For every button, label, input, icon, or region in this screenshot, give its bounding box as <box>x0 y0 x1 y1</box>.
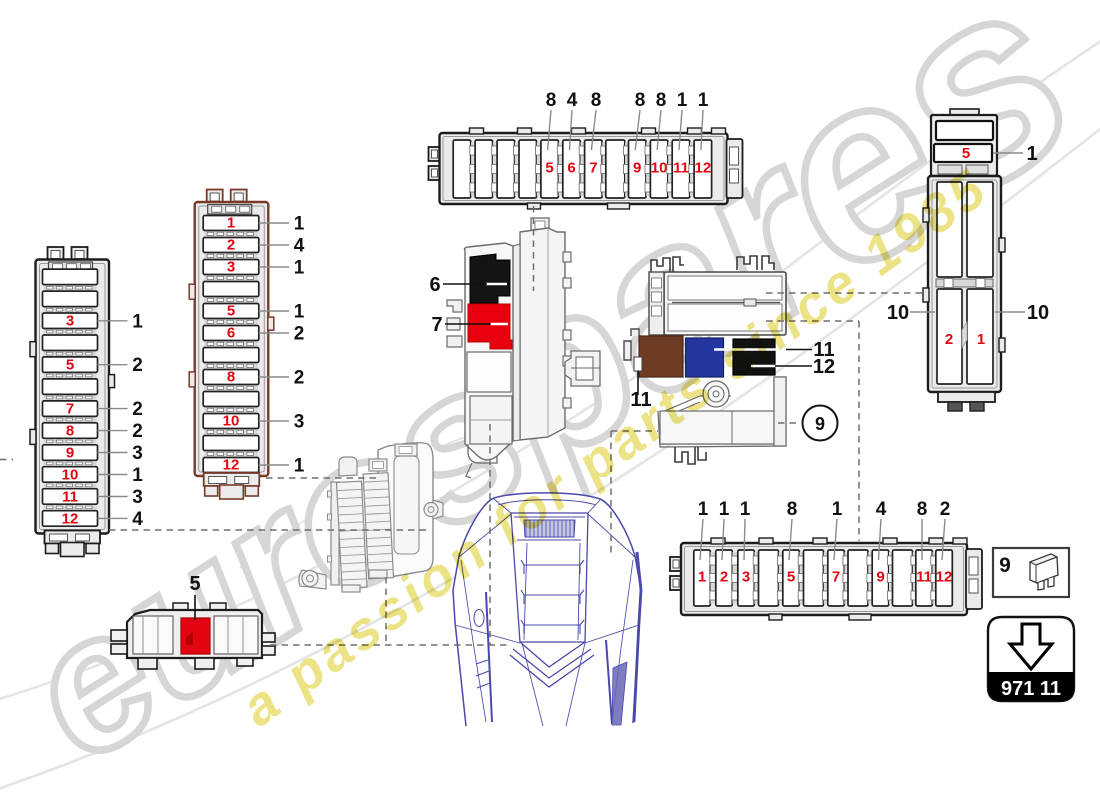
svg-text:2: 2 <box>294 368 305 389</box>
svg-text:9: 9 <box>66 445 74 462</box>
svg-text:5: 5 <box>66 357 74 374</box>
svg-text:12: 12 <box>223 457 240 474</box>
svg-text:12: 12 <box>695 160 712 177</box>
svg-text:5: 5 <box>787 569 795 586</box>
svg-text:3: 3 <box>132 443 143 464</box>
svg-text:8: 8 <box>635 90 646 111</box>
svg-text:5: 5 <box>189 573 200 595</box>
svg-text:8: 8 <box>917 499 928 520</box>
svg-text:1: 1 <box>698 569 706 586</box>
svg-text:971 11: 971 11 <box>1001 678 1061 700</box>
svg-text:1: 1 <box>977 331 985 348</box>
svg-text:1: 1 <box>294 214 305 235</box>
svg-text:1: 1 <box>698 90 709 111</box>
svg-text:3: 3 <box>227 259 235 276</box>
svg-text:1: 1 <box>294 302 305 323</box>
svg-text:2: 2 <box>945 331 953 348</box>
svg-text:6: 6 <box>567 160 575 177</box>
svg-text:10: 10 <box>223 413 240 430</box>
svg-text:6: 6 <box>429 274 440 296</box>
svg-text:2: 2 <box>227 237 235 254</box>
svg-text:9: 9 <box>876 569 884 586</box>
svg-text:10: 10 <box>651 160 668 177</box>
svg-text:10: 10 <box>1027 302 1049 324</box>
svg-text:3: 3 <box>66 313 74 330</box>
svg-text:11: 11 <box>916 569 932 586</box>
svg-text:10: 10 <box>62 466 79 483</box>
svg-text:2: 2 <box>132 355 143 376</box>
svg-text:12: 12 <box>936 569 953 586</box>
svg-text:7: 7 <box>589 160 597 177</box>
svg-text:2: 2 <box>132 421 143 442</box>
svg-text:3: 3 <box>742 569 750 586</box>
svg-text:8: 8 <box>591 90 602 111</box>
svg-text:1: 1 <box>677 90 688 111</box>
svg-text:4: 4 <box>294 236 305 257</box>
svg-text:1: 1 <box>698 499 709 520</box>
svg-text:3: 3 <box>294 412 305 433</box>
svg-text:8: 8 <box>546 90 557 111</box>
svg-text:12: 12 <box>62 510 79 527</box>
svg-text:1: 1 <box>1026 143 1037 165</box>
svg-text:9: 9 <box>999 554 1011 577</box>
svg-text:11: 11 <box>62 488 78 505</box>
svg-text:2: 2 <box>720 569 728 586</box>
svg-text:1: 1 <box>294 258 305 279</box>
svg-text:4: 4 <box>876 499 887 520</box>
svg-text:5: 5 <box>227 303 235 320</box>
svg-text:1: 1 <box>740 499 751 520</box>
svg-text:10: 10 <box>887 302 909 324</box>
svg-text:8: 8 <box>656 90 667 111</box>
svg-text:4: 4 <box>132 509 143 530</box>
svg-text:2: 2 <box>132 399 143 420</box>
svg-text:1: 1 <box>227 215 235 232</box>
svg-text:2: 2 <box>294 324 305 345</box>
svg-text:7: 7 <box>832 569 840 586</box>
svg-text:7: 7 <box>431 314 442 336</box>
svg-text:8: 8 <box>787 499 798 520</box>
svg-text:12: 12 <box>813 356 835 378</box>
svg-text:1: 1 <box>132 465 143 486</box>
svg-text:1: 1 <box>832 499 843 520</box>
svg-text:6: 6 <box>227 325 235 342</box>
svg-text:1: 1 <box>132 311 143 332</box>
svg-text:11: 11 <box>673 160 689 177</box>
svg-text:8: 8 <box>227 369 235 386</box>
svg-text:7: 7 <box>66 401 74 418</box>
svg-text:1: 1 <box>719 499 730 520</box>
svg-text:5: 5 <box>545 160 553 177</box>
svg-text:2: 2 <box>940 499 951 520</box>
svg-text:9: 9 <box>815 414 825 434</box>
svg-text:9: 9 <box>633 160 641 177</box>
svg-text:1: 1 <box>294 456 305 477</box>
svg-text:8: 8 <box>66 423 74 440</box>
svg-text:4: 4 <box>567 90 578 111</box>
svg-text:3: 3 <box>132 487 143 508</box>
